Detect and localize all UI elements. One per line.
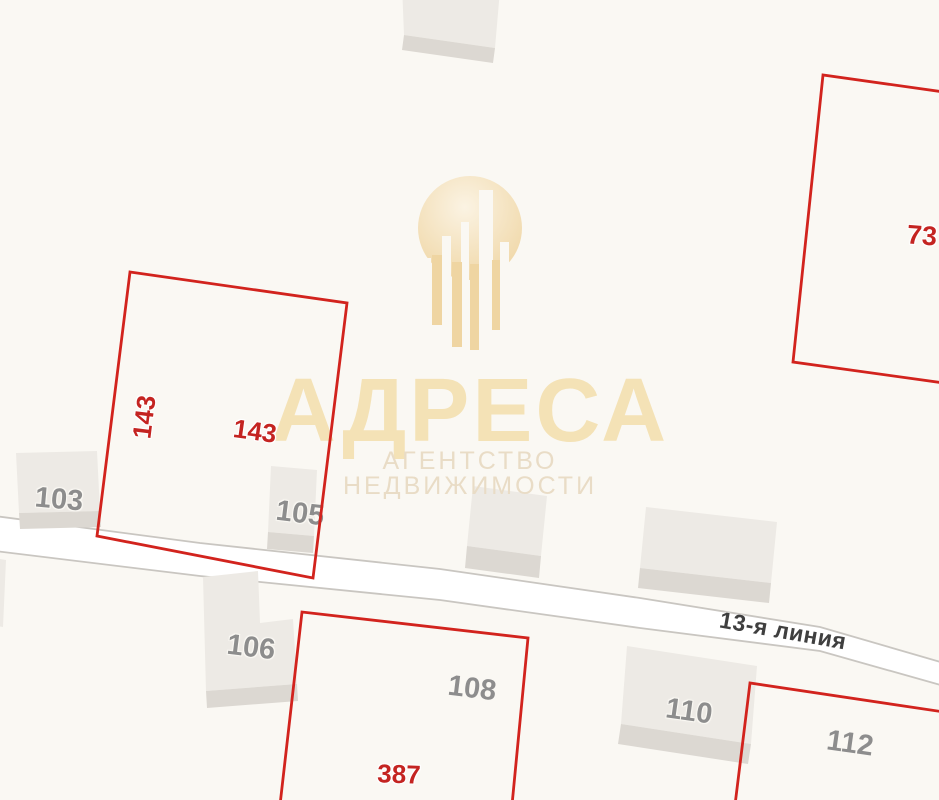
watermark-logo <box>418 176 522 372</box>
building-edge-sliver <box>0 558 6 627</box>
logo-slit-5 <box>500 242 509 362</box>
building-105 <box>268 466 317 536</box>
building-103 <box>16 451 100 513</box>
map-base-layer <box>0 0 939 800</box>
logo-bar-3 <box>470 264 479 350</box>
logo-slit-1 <box>422 258 431 368</box>
logo-slit-2 <box>442 236 451 366</box>
building-103-base <box>19 511 101 529</box>
logo-bar-4 <box>492 260 500 330</box>
building-106 <box>203 571 297 691</box>
building-unlabeled-1 <box>467 486 547 556</box>
logo-slit-4 <box>479 190 493 365</box>
logo-bar-2 <box>452 262 462 347</box>
logo-bar-1 <box>432 255 442 325</box>
road-border-bottom <box>0 551 939 686</box>
logo-slit-3 <box>461 222 469 372</box>
map-viewport[interactable]: АДРЕСА АГЕНТСТВО НЕДВИЖИМОСТИ 103 105 10… <box>0 0 939 800</box>
